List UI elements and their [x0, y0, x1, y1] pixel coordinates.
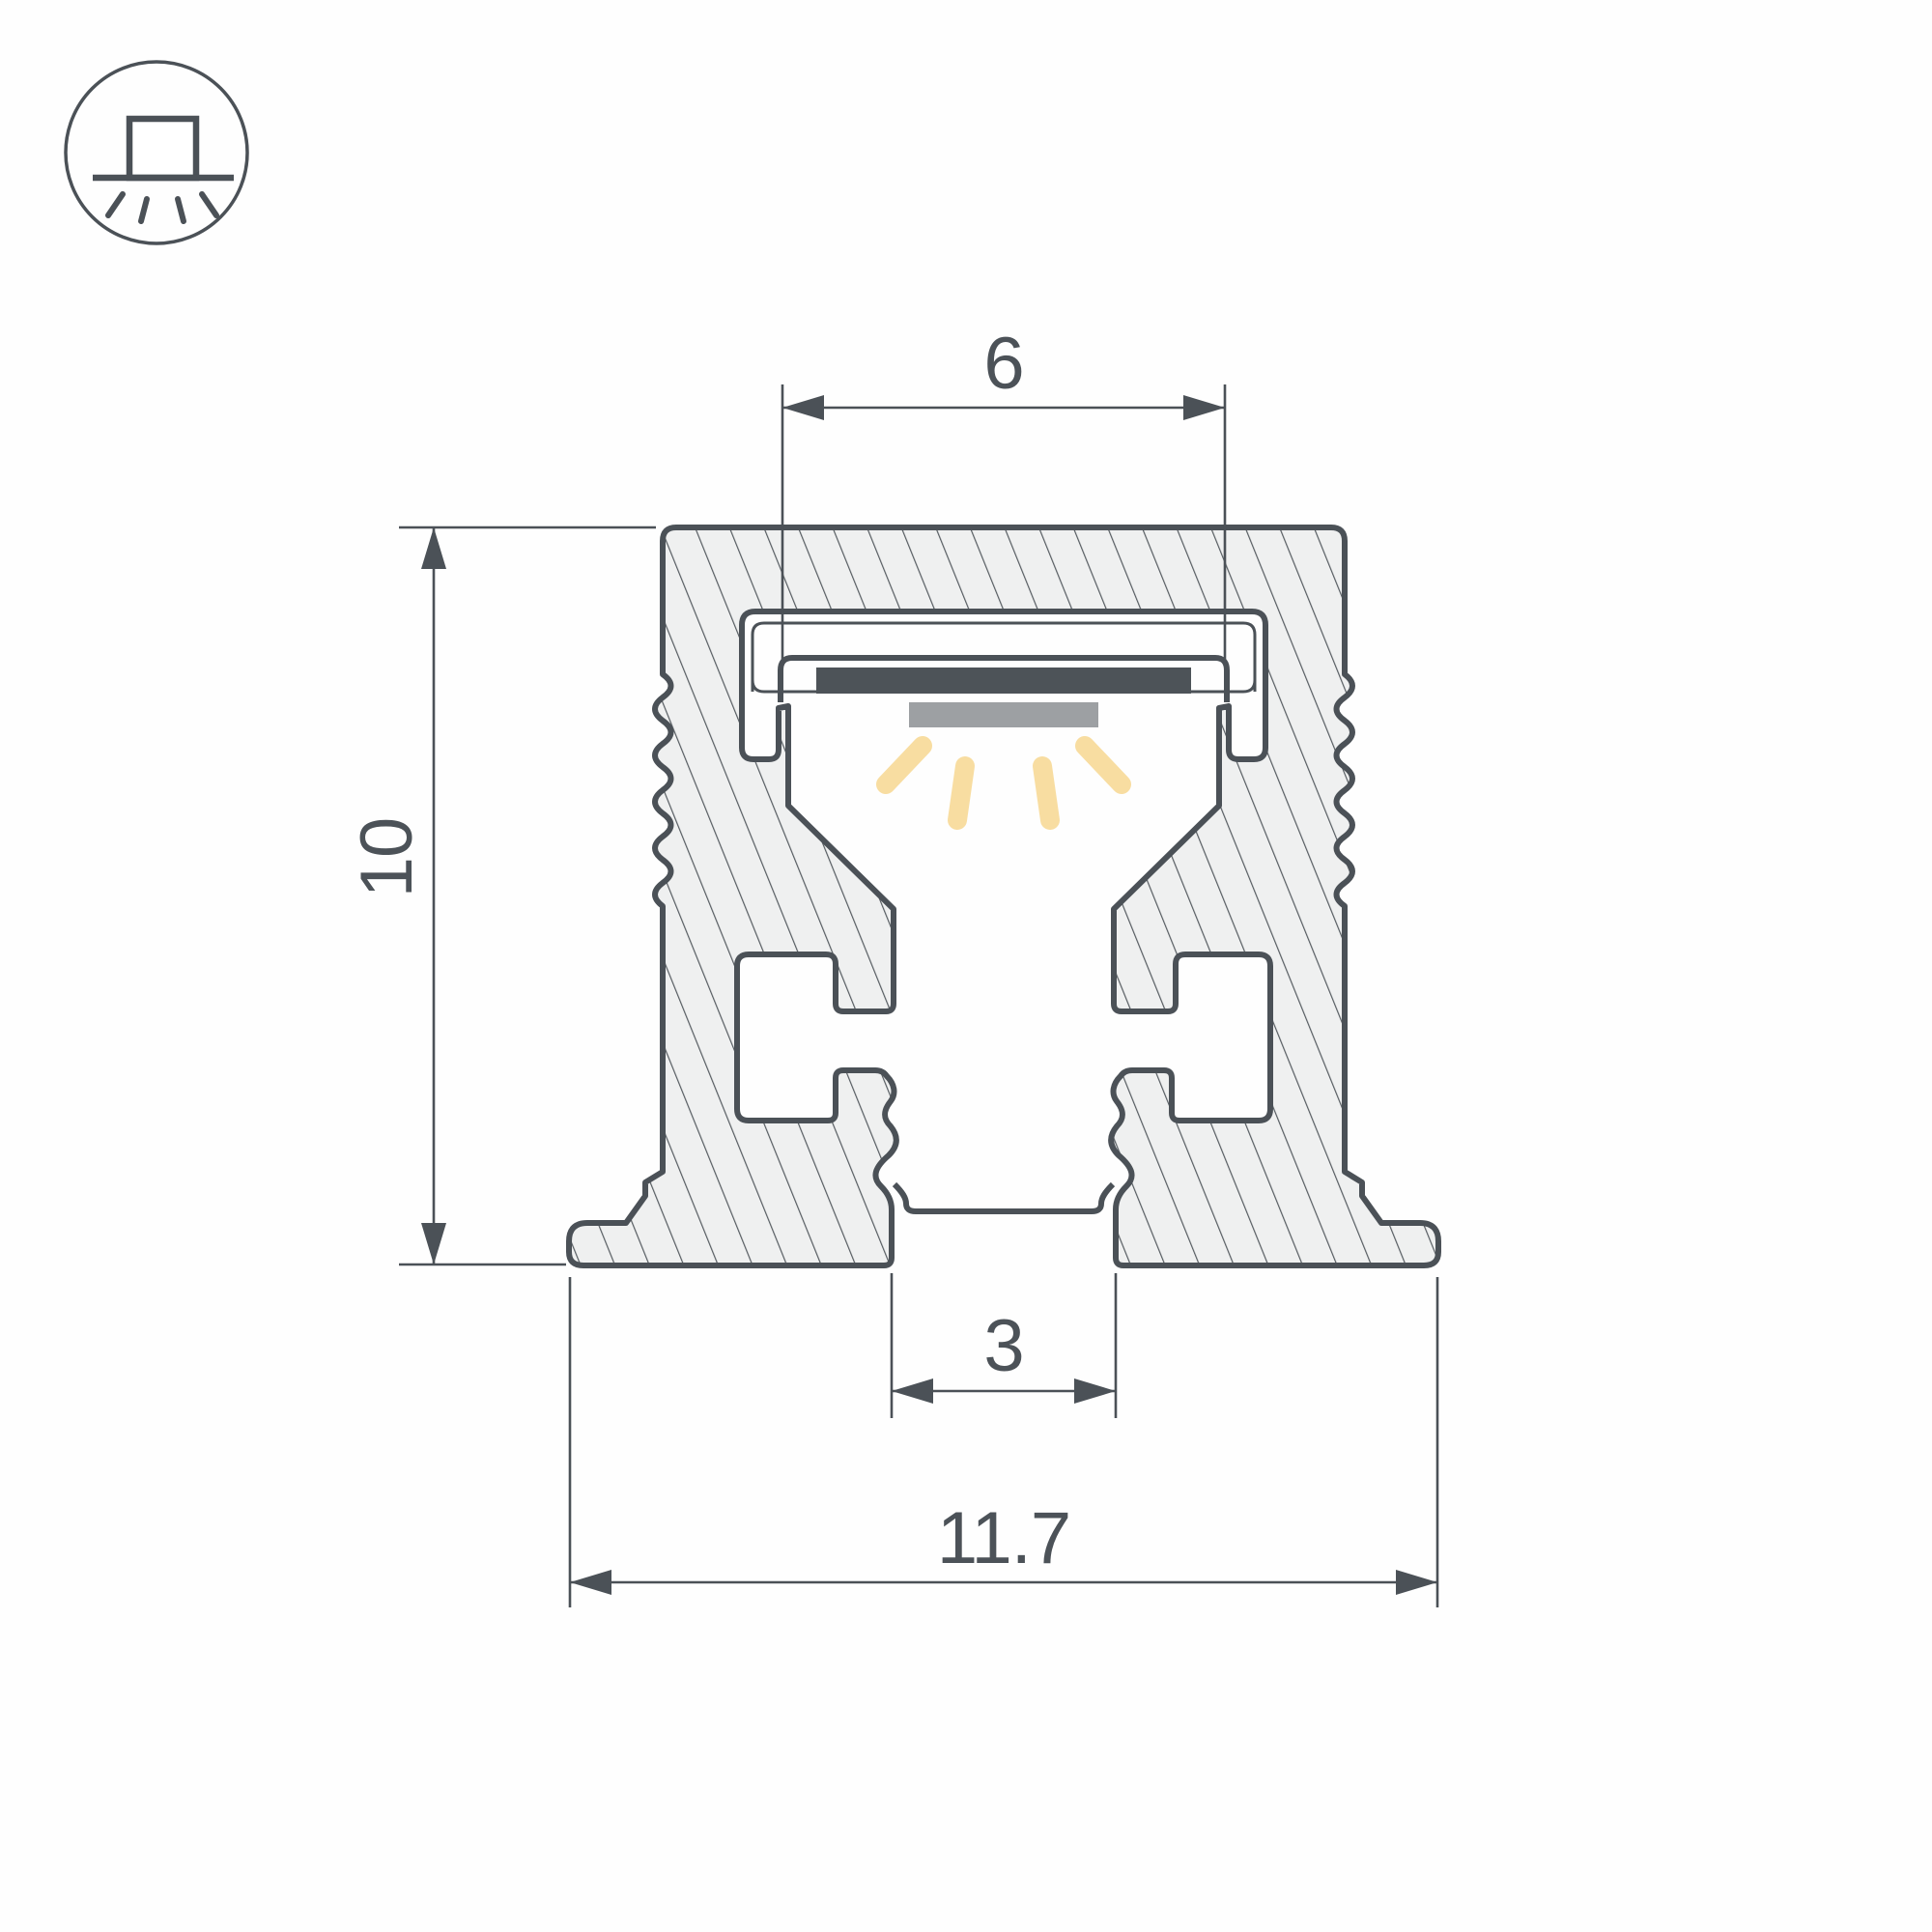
icon-light-rays — [108, 194, 216, 221]
icon-fixture-box — [129, 119, 196, 178]
arrowhead — [421, 1223, 446, 1264]
dimension-label: 3 — [983, 1305, 1023, 1387]
arrowhead — [570, 1570, 611, 1595]
technical-drawing: 6 10 3 11.7 — [0, 0, 1932, 1932]
led-strip — [816, 668, 1191, 694]
dimension-label: 10 — [346, 818, 428, 898]
screw-channel-floor — [895, 1184, 1113, 1211]
profile-cross-section — [569, 527, 1438, 1265]
led-tape — [909, 702, 1098, 727]
arrowhead — [892, 1378, 933, 1404]
arrowhead — [1074, 1378, 1116, 1404]
surface-light-icon — [66, 62, 247, 243]
profile-body-hatch — [569, 527, 1438, 1265]
light-rays — [886, 746, 1122, 820]
technical-drawing-page: 6 10 3 11.7 — [0, 0, 1932, 1932]
light-ray — [1085, 746, 1122, 784]
arrowhead — [421, 527, 446, 569]
light-ray — [957, 766, 965, 820]
dimension-10: 10 — [346, 527, 656, 1264]
dimension-label: 6 — [983, 323, 1023, 405]
dimension-label: 11.7 — [937, 1497, 1070, 1579]
light-ray — [886, 746, 923, 784]
light-ray — [1042, 766, 1050, 820]
arrowhead — [782, 395, 824, 420]
arrowhead — [1396, 1570, 1437, 1595]
dimension-3: 3 — [892, 1273, 1116, 1418]
arrowhead — [1183, 395, 1225, 420]
